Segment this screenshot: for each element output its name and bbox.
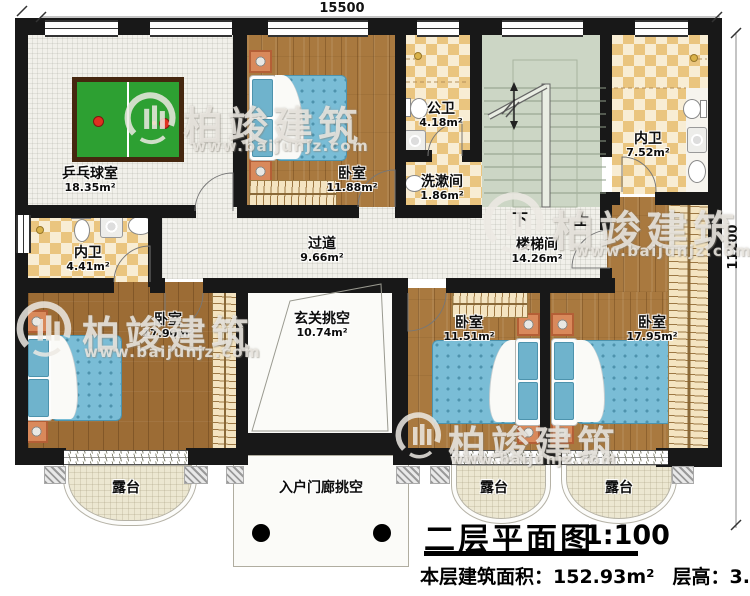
wardrobe	[249, 180, 337, 208]
shower-head-icon	[36, 226, 44, 234]
watermark-url: www.baijunjz.com	[192, 137, 369, 155]
window	[16, 215, 31, 253]
wall-hatch	[44, 466, 66, 484]
window	[268, 20, 368, 37]
pillow	[28, 379, 49, 417]
porch-void	[233, 455, 409, 567]
room-label-bedroom-mid: 卧室11.51m²	[443, 316, 494, 342]
dimension-top: 15500	[312, 1, 372, 16]
wall	[462, 150, 482, 162]
wall-hatch	[396, 466, 420, 484]
toilet-tank	[700, 100, 707, 118]
label-terrace-right: 露台	[605, 481, 633, 496]
watermark-url: www.baijunjz.com	[84, 343, 261, 361]
wardrobe	[452, 290, 528, 318]
label-porch-void: 入户门廊挑空	[279, 481, 363, 496]
label-terrace-mid: 露台	[480, 481, 508, 496]
watermark-url: www.baijunjz.com	[450, 452, 617, 468]
window	[502, 20, 583, 37]
terrace-door	[64, 450, 188, 465]
toilet-icon	[74, 219, 90, 242]
wall	[15, 278, 114, 293]
wall-hatch	[184, 466, 208, 484]
wall	[237, 205, 359, 218]
wall	[392, 280, 408, 455]
paddle-icon	[93, 116, 104, 127]
floor-height-value: 3.3m	[729, 566, 750, 588]
wall-hatch	[226, 466, 244, 484]
wall-hatch	[430, 466, 450, 484]
wall	[15, 205, 196, 218]
floor-area-value: 152.93m²	[553, 566, 654, 588]
room-label-washroom: 洗漱间1.86m²	[420, 175, 463, 201]
porch-column	[373, 524, 391, 542]
window	[45, 20, 118, 37]
washing-machine-icon	[404, 130, 426, 152]
pillow	[28, 339, 49, 377]
wall	[600, 33, 612, 157]
floor-plan: 乒乓球室18.35m² 卧室11.88m² 公卫4.18m² 洗漱间1.86m²…	[0, 0, 750, 596]
wall	[404, 205, 482, 218]
plan-scale: 1:100	[584, 520, 670, 551]
nightstand	[25, 420, 48, 443]
wall	[470, 33, 482, 157]
label-terrace-left: 露台	[112, 481, 140, 496]
wall	[245, 433, 395, 455]
title-underline	[424, 551, 638, 556]
room-label-public-bath: 公卫4.18m²	[419, 102, 462, 128]
nightstand	[249, 50, 272, 73]
room-label-pingpong: 乒乓球室18.35m²	[62, 167, 118, 193]
window	[417, 20, 459, 37]
room-label-bedroom-top: 卧室11.88m²	[326, 167, 377, 193]
wall	[15, 448, 66, 465]
room-label-foyer-void: 玄关挑空10.74m²	[294, 312, 350, 338]
sink-icon	[688, 160, 706, 183]
washing-machine-icon	[100, 215, 123, 238]
porch-column	[252, 524, 270, 542]
room-label-bedroom-right: 卧室17.95m²	[626, 316, 677, 342]
pillow	[554, 342, 574, 380]
room-label-ensuite-left: 内卫4.41m²	[66, 246, 109, 272]
toilet-icon	[683, 99, 701, 119]
room-label-corridor: 过道9.66m²	[300, 237, 343, 263]
pillow	[518, 342, 538, 380]
floor-height-label: 层高：	[672, 566, 729, 588]
plan-subtitle: 本层建筑面积：152.93m²层高：3.3m	[420, 562, 750, 589]
wall-hatch	[672, 466, 694, 484]
window	[150, 20, 232, 37]
shower-head-icon	[414, 52, 422, 60]
window	[635, 20, 688, 37]
room-stairwell-floor	[482, 35, 602, 207]
wall	[404, 150, 432, 162]
wall	[150, 278, 165, 293]
watermark-url: www.baijunjz.com	[575, 242, 750, 260]
bathtub-icon	[687, 127, 707, 153]
wall	[15, 18, 722, 35]
floor-area-label: 本层建筑面积：	[420, 566, 553, 588]
wall	[446, 278, 615, 293]
nightstand	[25, 310, 48, 333]
stairs-down-label: 下	[512, 206, 528, 230]
wall	[203, 278, 408, 293]
paddle-icon	[159, 118, 170, 129]
ball-icon	[152, 121, 156, 125]
wall	[395, 33, 406, 207]
nightstand	[551, 313, 574, 336]
shower-head-icon	[690, 54, 698, 62]
room-label-ensuite-right: 内卫7.52m²	[626, 132, 669, 158]
